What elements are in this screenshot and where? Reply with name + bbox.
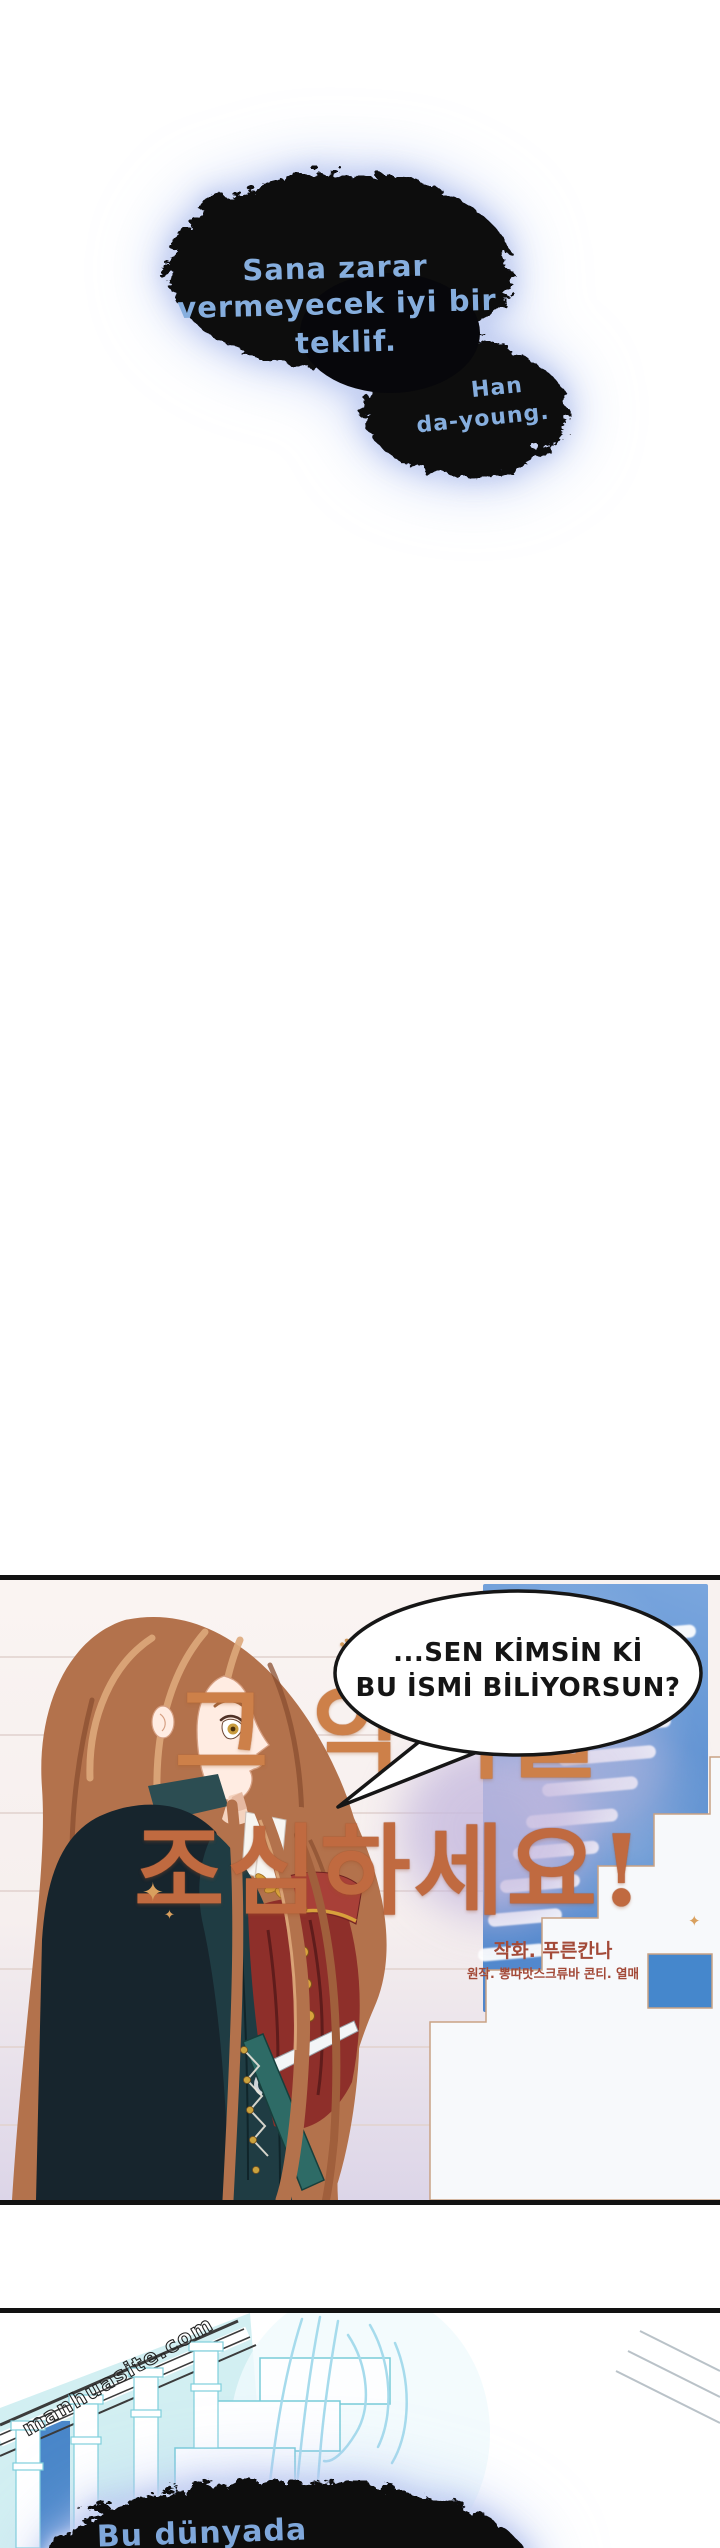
sparkle-icon: ✦ [142,1878,164,1908]
credit-original: 원작. 뽕따맛스크류바 콘티. 열매 [467,1963,639,1982]
speech-line-2: BU İSMİ BİLİYORSUN? [356,1671,681,1706]
sparkle-icon: ✦ [164,1908,175,1923]
credit-artist: 작화. 푸른칸나 [494,1936,613,1963]
title-logo-block: ♛ 그 악녀를 조심하세요! ✦ ✦ ✦ 작화. 푸른칸나 원작. 뽕따맛스크류… [0,800,720,1220]
narration-text-line-3: teklif. [295,324,398,361]
speech-line-1: ...SEN KİMSİN Kİ [356,1636,681,1671]
narration-text-line-1: Sana zarar [242,249,428,288]
webtoon-page: Sana zarar vermeyecek iyi bir teklif. Ha… [0,0,720,2548]
stair-underside-lines [616,2331,720,2423]
window [648,1954,712,2008]
sparkle-icon: ✦ [688,1912,701,1930]
bottom-bubble-text: Bu dünyada [96,2512,307,2548]
ear [152,1706,174,1738]
narration-bubble-group: Sana zarar vermeyecek iyi bir teklif. Ha… [0,0,720,520]
speech-bubble-text: ...SEN KİMSİN Kİ BU İSMİ BİLİYORSUN? [356,1636,681,1706]
